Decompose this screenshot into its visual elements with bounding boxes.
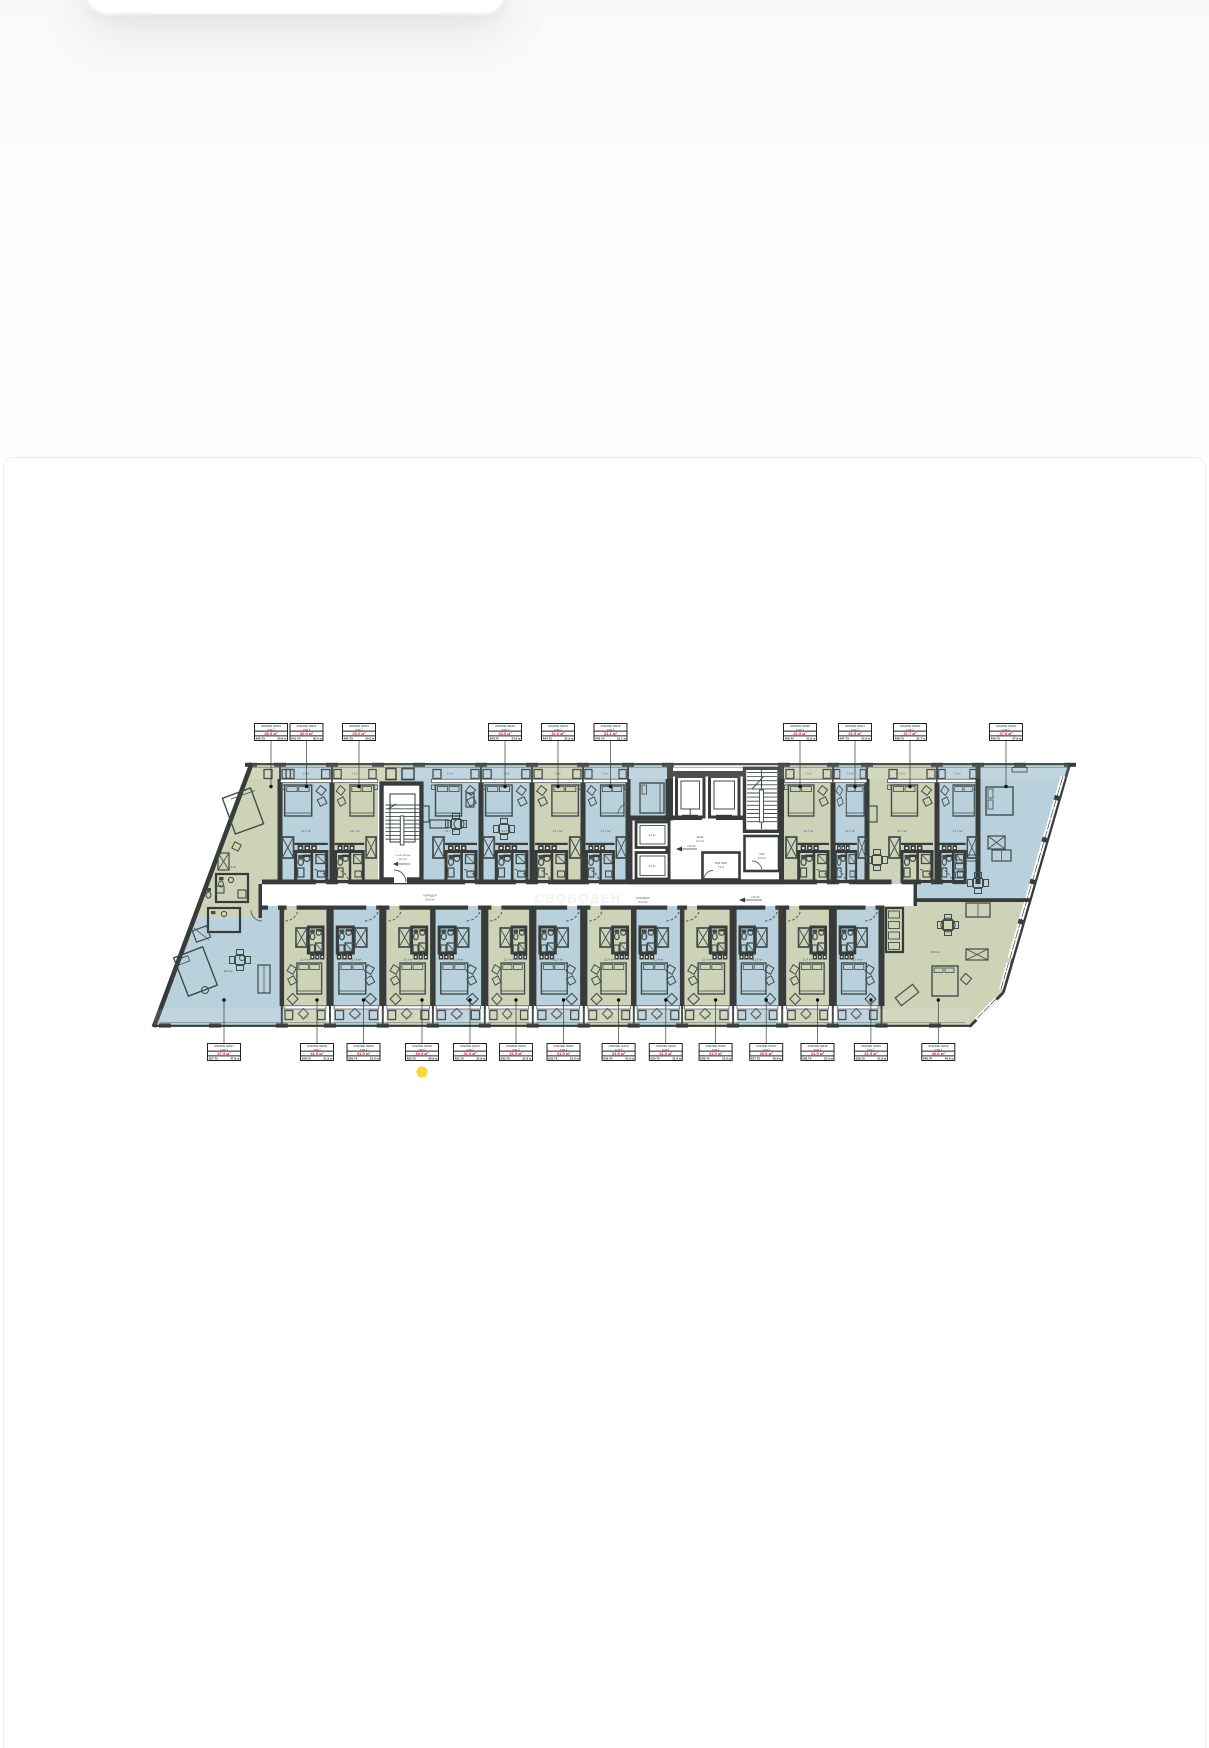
svg-text:627.75: 627.75 — [209, 1057, 219, 1061]
svg-text:31.9 м²: 31.9 м² — [793, 731, 807, 736]
svg-text:31.9 м: 31.9 м — [476, 1057, 486, 1061]
svg-text:643.75: 643.75 — [490, 737, 500, 741]
svg-text:29.2 м: 29.2 м — [365, 737, 375, 741]
svg-text:47.9 м: 47.9 м — [230, 1057, 240, 1061]
svg-text:31.9 м: 31.9 м — [522, 1057, 532, 1061]
svg-text:31.9 м: 31.9 м — [722, 1057, 732, 1061]
svg-text:30.9 м²: 30.9 м² — [300, 731, 314, 736]
svg-text:31.9 м²: 31.9 м² — [659, 1051, 673, 1056]
svg-text:29.2 м²: 29.2 м² — [352, 731, 366, 736]
svg-text:47.9 м²: 47.9 м² — [217, 1051, 231, 1056]
svg-text:40.6 м²: 40.6 м² — [932, 1051, 946, 1056]
svg-text:640.75: 640.75 — [256, 737, 266, 741]
svg-text:31.7 м: 31.7 м — [916, 737, 926, 741]
svg-text:635.75: 635.75 — [651, 1057, 661, 1061]
svg-text:31.7 м²: 31.7 м² — [903, 731, 917, 736]
svg-text:630.75: 630.75 — [407, 1057, 417, 1061]
svg-text:628.75: 628.75 — [302, 1057, 312, 1061]
svg-text:30.9 м: 30.9 м — [773, 1057, 783, 1061]
svg-text:30.9 м²: 30.9 м² — [415, 1051, 429, 1056]
svg-text:31.9 м²: 31.9 м² — [612, 1051, 626, 1056]
svg-text:31.9 м²: 31.9 м² — [463, 1051, 477, 1056]
svg-text:644.75: 644.75 — [543, 737, 553, 741]
svg-text:30.9 м: 30.9 м — [313, 737, 323, 741]
svg-text:31.9 м²: 31.9 м² — [310, 1051, 324, 1056]
svg-text:632.75: 632.75 — [501, 1057, 511, 1061]
svg-text:31.9 м²: 31.9 м² — [357, 1051, 371, 1056]
svg-text:40.6 м: 40.6 м — [945, 1057, 955, 1061]
svg-text:31.1 м²: 31.1 м² — [604, 731, 618, 736]
svg-text:31.9 м²: 31.9 м² — [864, 1051, 878, 1056]
svg-text:645.75: 645.75 — [595, 737, 605, 741]
svg-text:37.9 м²: 37.9 м² — [999, 731, 1013, 736]
svg-text:30.9 м²: 30.9 м² — [264, 731, 278, 736]
svg-text:31.9 м²: 31.9 м² — [811, 1051, 825, 1056]
svg-text:642.75: 642.75 — [344, 737, 354, 741]
svg-text:640.75: 640.75 — [923, 1057, 933, 1061]
svg-text:649.75: 649.75 — [991, 737, 1001, 741]
svg-text:31.9 м: 31.9 м — [672, 1057, 682, 1061]
svg-text:638.75: 638.75 — [802, 1057, 812, 1061]
svg-text:648.75: 648.75 — [895, 737, 905, 741]
svg-text:629.75: 629.75 — [348, 1057, 358, 1061]
svg-text:647.75: 647.75 — [840, 737, 850, 741]
svg-text:641.75: 641.75 — [291, 737, 301, 741]
svg-text:33.6 м: 33.6 м — [511, 737, 521, 741]
svg-text:31.9 м²: 31.9 м² — [709, 1051, 723, 1056]
svg-text:31.9 м: 31.9 м — [806, 737, 816, 741]
svg-text:639.75: 639.75 — [856, 1057, 866, 1061]
svg-text:637.75: 637.75 — [751, 1057, 761, 1061]
svg-text:634.75: 634.75 — [603, 1057, 613, 1061]
svg-text:633.75: 633.75 — [548, 1057, 558, 1061]
svg-text:30.9 м: 30.9 м — [277, 737, 287, 741]
svg-text:636.75: 636.75 — [700, 1057, 710, 1061]
svg-text:31.9 м: 31.9 м — [824, 1057, 834, 1061]
svg-text:31.9 м: 31.9 м — [370, 1057, 380, 1061]
svg-text:37.9 м: 37.9 м — [1012, 737, 1022, 741]
svg-text:31.9 м²: 31.9 м² — [509, 1051, 523, 1056]
svg-text:31.9 м²: 31.9 м² — [848, 731, 862, 736]
svg-text:31.0 м: 31.0 м — [564, 737, 574, 741]
svg-text:31.1 м: 31.1 м — [617, 737, 627, 741]
svg-text:646.75: 646.75 — [785, 737, 795, 741]
svg-text:31.9 м: 31.9 м — [323, 1057, 333, 1061]
svg-text:31.9 м: 31.9 м — [861, 737, 871, 741]
svg-text:31.0 м²: 31.0 м² — [551, 731, 565, 736]
svg-text:30.9 м: 30.9 м — [428, 1057, 438, 1061]
svg-text:31.9 м²: 31.9 м² — [557, 1051, 571, 1056]
svg-text:33.6 м²: 33.6 м² — [498, 731, 512, 736]
svg-text:631.75: 631.75 — [455, 1057, 465, 1061]
svg-text:30.9 м²: 30.9 м² — [760, 1051, 774, 1056]
svg-text:31.9 м: 31.9 м — [625, 1057, 635, 1061]
svg-text:31.9 м: 31.9 м — [570, 1057, 580, 1061]
svg-text:31.9 м: 31.9 м — [877, 1057, 887, 1061]
